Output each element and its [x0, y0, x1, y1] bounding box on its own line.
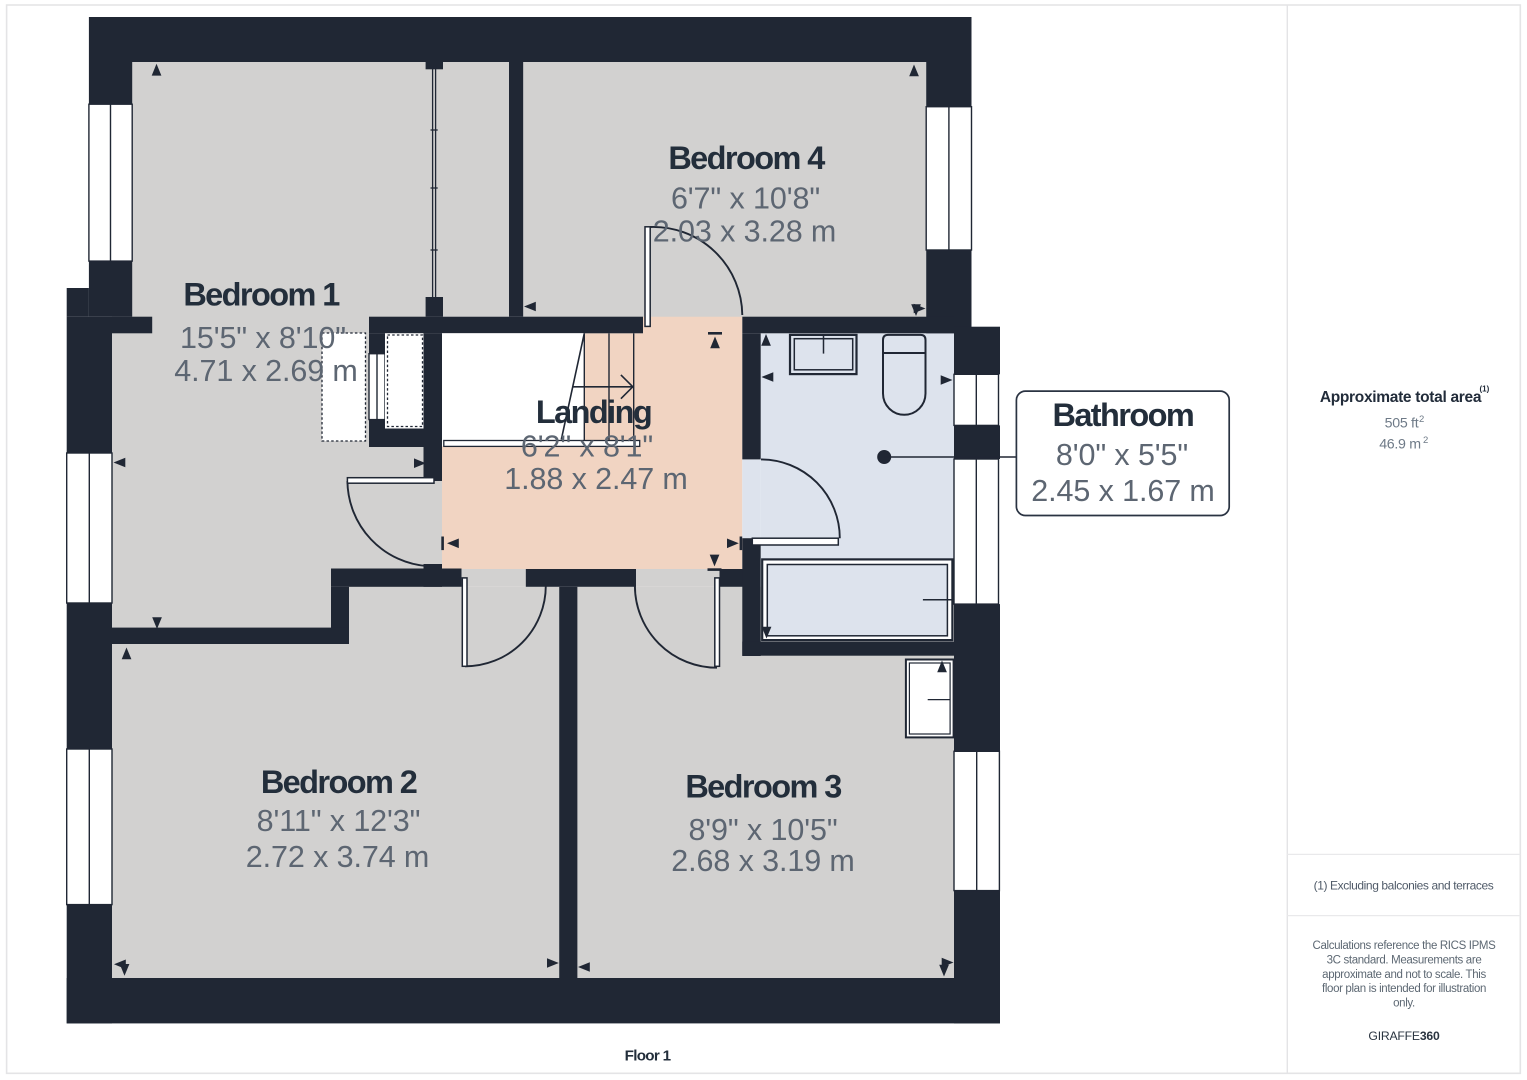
- svg-text:floor plan is intended for ill: floor plan is intended for illustration: [1322, 983, 1486, 995]
- svg-text:(1) Excluding balconies and te: (1) Excluding balconies and terraces: [1314, 879, 1494, 893]
- svg-text:2.68 x 3.19 m: 2.68 x 3.19 m: [671, 844, 855, 878]
- svg-text:2.03 x 3.28 m: 2.03 x 3.28 m: [653, 215, 837, 249]
- svg-text:Bedroom 1: Bedroom 1: [183, 277, 340, 313]
- svg-text:only.: only.: [1393, 998, 1415, 1010]
- svg-text:Bedroom 3: Bedroom 3: [685, 769, 841, 805]
- svg-text:8'11" x 12'3": 8'11" x 12'3": [257, 804, 421, 838]
- svg-text:2: 2: [1423, 435, 1428, 446]
- svg-text:(1): (1): [1480, 385, 1490, 394]
- svg-text:Floor 1: Floor 1: [625, 1047, 672, 1064]
- svg-text:Calculations reference the RIC: Calculations reference the RICS IPMS: [1313, 940, 1497, 952]
- svg-text:Bathroom: Bathroom: [1052, 397, 1193, 433]
- svg-text:2.72 x 3.74 m: 2.72 x 3.74 m: [246, 840, 430, 874]
- svg-text:505 ft: 505 ft: [1385, 416, 1419, 432]
- svg-text:15'5" x 8'10": 15'5" x 8'10": [180, 321, 346, 355]
- svg-text:Approximate total area: Approximate total area: [1320, 389, 1482, 406]
- svg-text:2: 2: [1419, 414, 1424, 425]
- svg-text:6'2" x 8'1": 6'2" x 8'1": [521, 430, 653, 464]
- svg-text:8'0" x 5'5": 8'0" x 5'5": [1056, 438, 1188, 472]
- svg-text:approximate and not to scale.: approximate and not to scale. This: [1322, 969, 1486, 981]
- svg-text:Bedroom 2: Bedroom 2: [261, 764, 417, 800]
- svg-text:GIRAFFE360: GIRAFFE360: [1368, 1029, 1440, 1043]
- svg-text:1.88 x 2.47 m: 1.88 x 2.47 m: [504, 462, 688, 496]
- svg-text:4.71 x 2.69 m: 4.71 x 2.69 m: [174, 354, 358, 388]
- svg-text:46.9 m: 46.9 m: [1379, 437, 1421, 453]
- svg-text:2.45 x 1.67 m: 2.45 x 1.67 m: [1031, 474, 1215, 508]
- svg-text:3C standard. Measurements are: 3C standard. Measurements are: [1327, 954, 1482, 966]
- svg-text:8'9" x 10'5": 8'9" x 10'5": [688, 813, 837, 847]
- svg-text:Bedroom 4: Bedroom 4: [668, 140, 825, 176]
- svg-text:Landing: Landing: [536, 394, 651, 430]
- svg-text:6'7" x 10'8": 6'7" x 10'8": [671, 181, 820, 215]
